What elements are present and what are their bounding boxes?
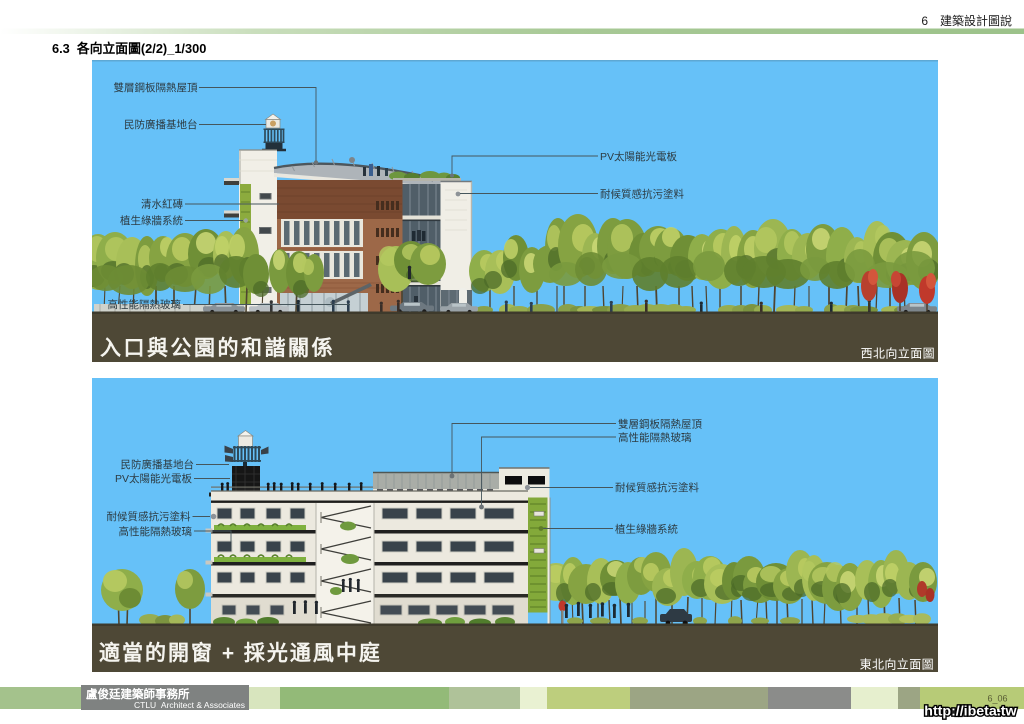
svg-text:西北向立面圖: 西北向立面圖 xyxy=(861,346,935,361)
svg-text:盧俊廷建築師事務所: 盧俊廷建築師事務所 xyxy=(86,687,190,701)
svg-text:耐候質感抗污塗料: 耐候質感抗污塗料 xyxy=(107,510,191,523)
svg-text:植生綠牆系統: 植生綠牆系統 xyxy=(120,214,183,227)
svg-text:植生綠牆系統: 植生綠牆系統 xyxy=(615,523,678,536)
svg-text:CTLU Architect & Associates: CTLU Architect & Associates xyxy=(134,700,245,710)
svg-text:6 建築設計圖說: 6 建築設計圖說 xyxy=(921,13,1012,28)
svg-text:耐候質感抗污塗料: 耐候質感抗污塗料 xyxy=(600,188,684,201)
svg-text:6_06: 6_06 xyxy=(987,694,1007,704)
svg-text:雙層鋼板隔熱屋頂: 雙層鋼板隔熱屋頂 xyxy=(618,418,702,431)
svg-text:耐候質感抗污塗料: 耐候質感抗污塗料 xyxy=(615,481,699,494)
svg-text:適當的開窗 + 採光通風中庭: 適當的開窗 + 採光通風中庭 xyxy=(99,641,382,665)
svg-text:PV太陽能光電板: PV太陽能光電板 xyxy=(600,150,678,163)
svg-text:清水紅磚: 清水紅磚 xyxy=(141,198,183,211)
svg-text:高性能隔熱玻璃: 高性能隔熱玻璃 xyxy=(119,525,193,538)
svg-text:高性能隔熱玻璃: 高性能隔熱玻璃 xyxy=(618,431,692,444)
svg-text:東北向立面圖: 東北向立面圖 xyxy=(860,657,934,672)
svg-text:http://ibeta.tw: http://ibeta.tw xyxy=(924,704,1017,720)
svg-text:雙層鋼板隔熱屋頂: 雙層鋼板隔熱屋頂 xyxy=(114,81,198,94)
svg-text:民防廣播基地台: 民防廣播基地台 xyxy=(124,118,198,131)
svg-text:民防廣播基地台: 民防廣播基地台 xyxy=(121,458,195,471)
svg-text:PV太陽能光電板: PV太陽能光電板 xyxy=(115,472,193,485)
svg-text:高性能隔熱玻璃: 高性能隔熱玻璃 xyxy=(108,298,182,311)
svg-text:6.3 各向立面圖(2/2)_1/300: 6.3 各向立面圖(2/2)_1/300 xyxy=(52,41,206,56)
svg-text:入口與公園的和諧關係: 入口與公園的和諧關係 xyxy=(100,336,335,360)
